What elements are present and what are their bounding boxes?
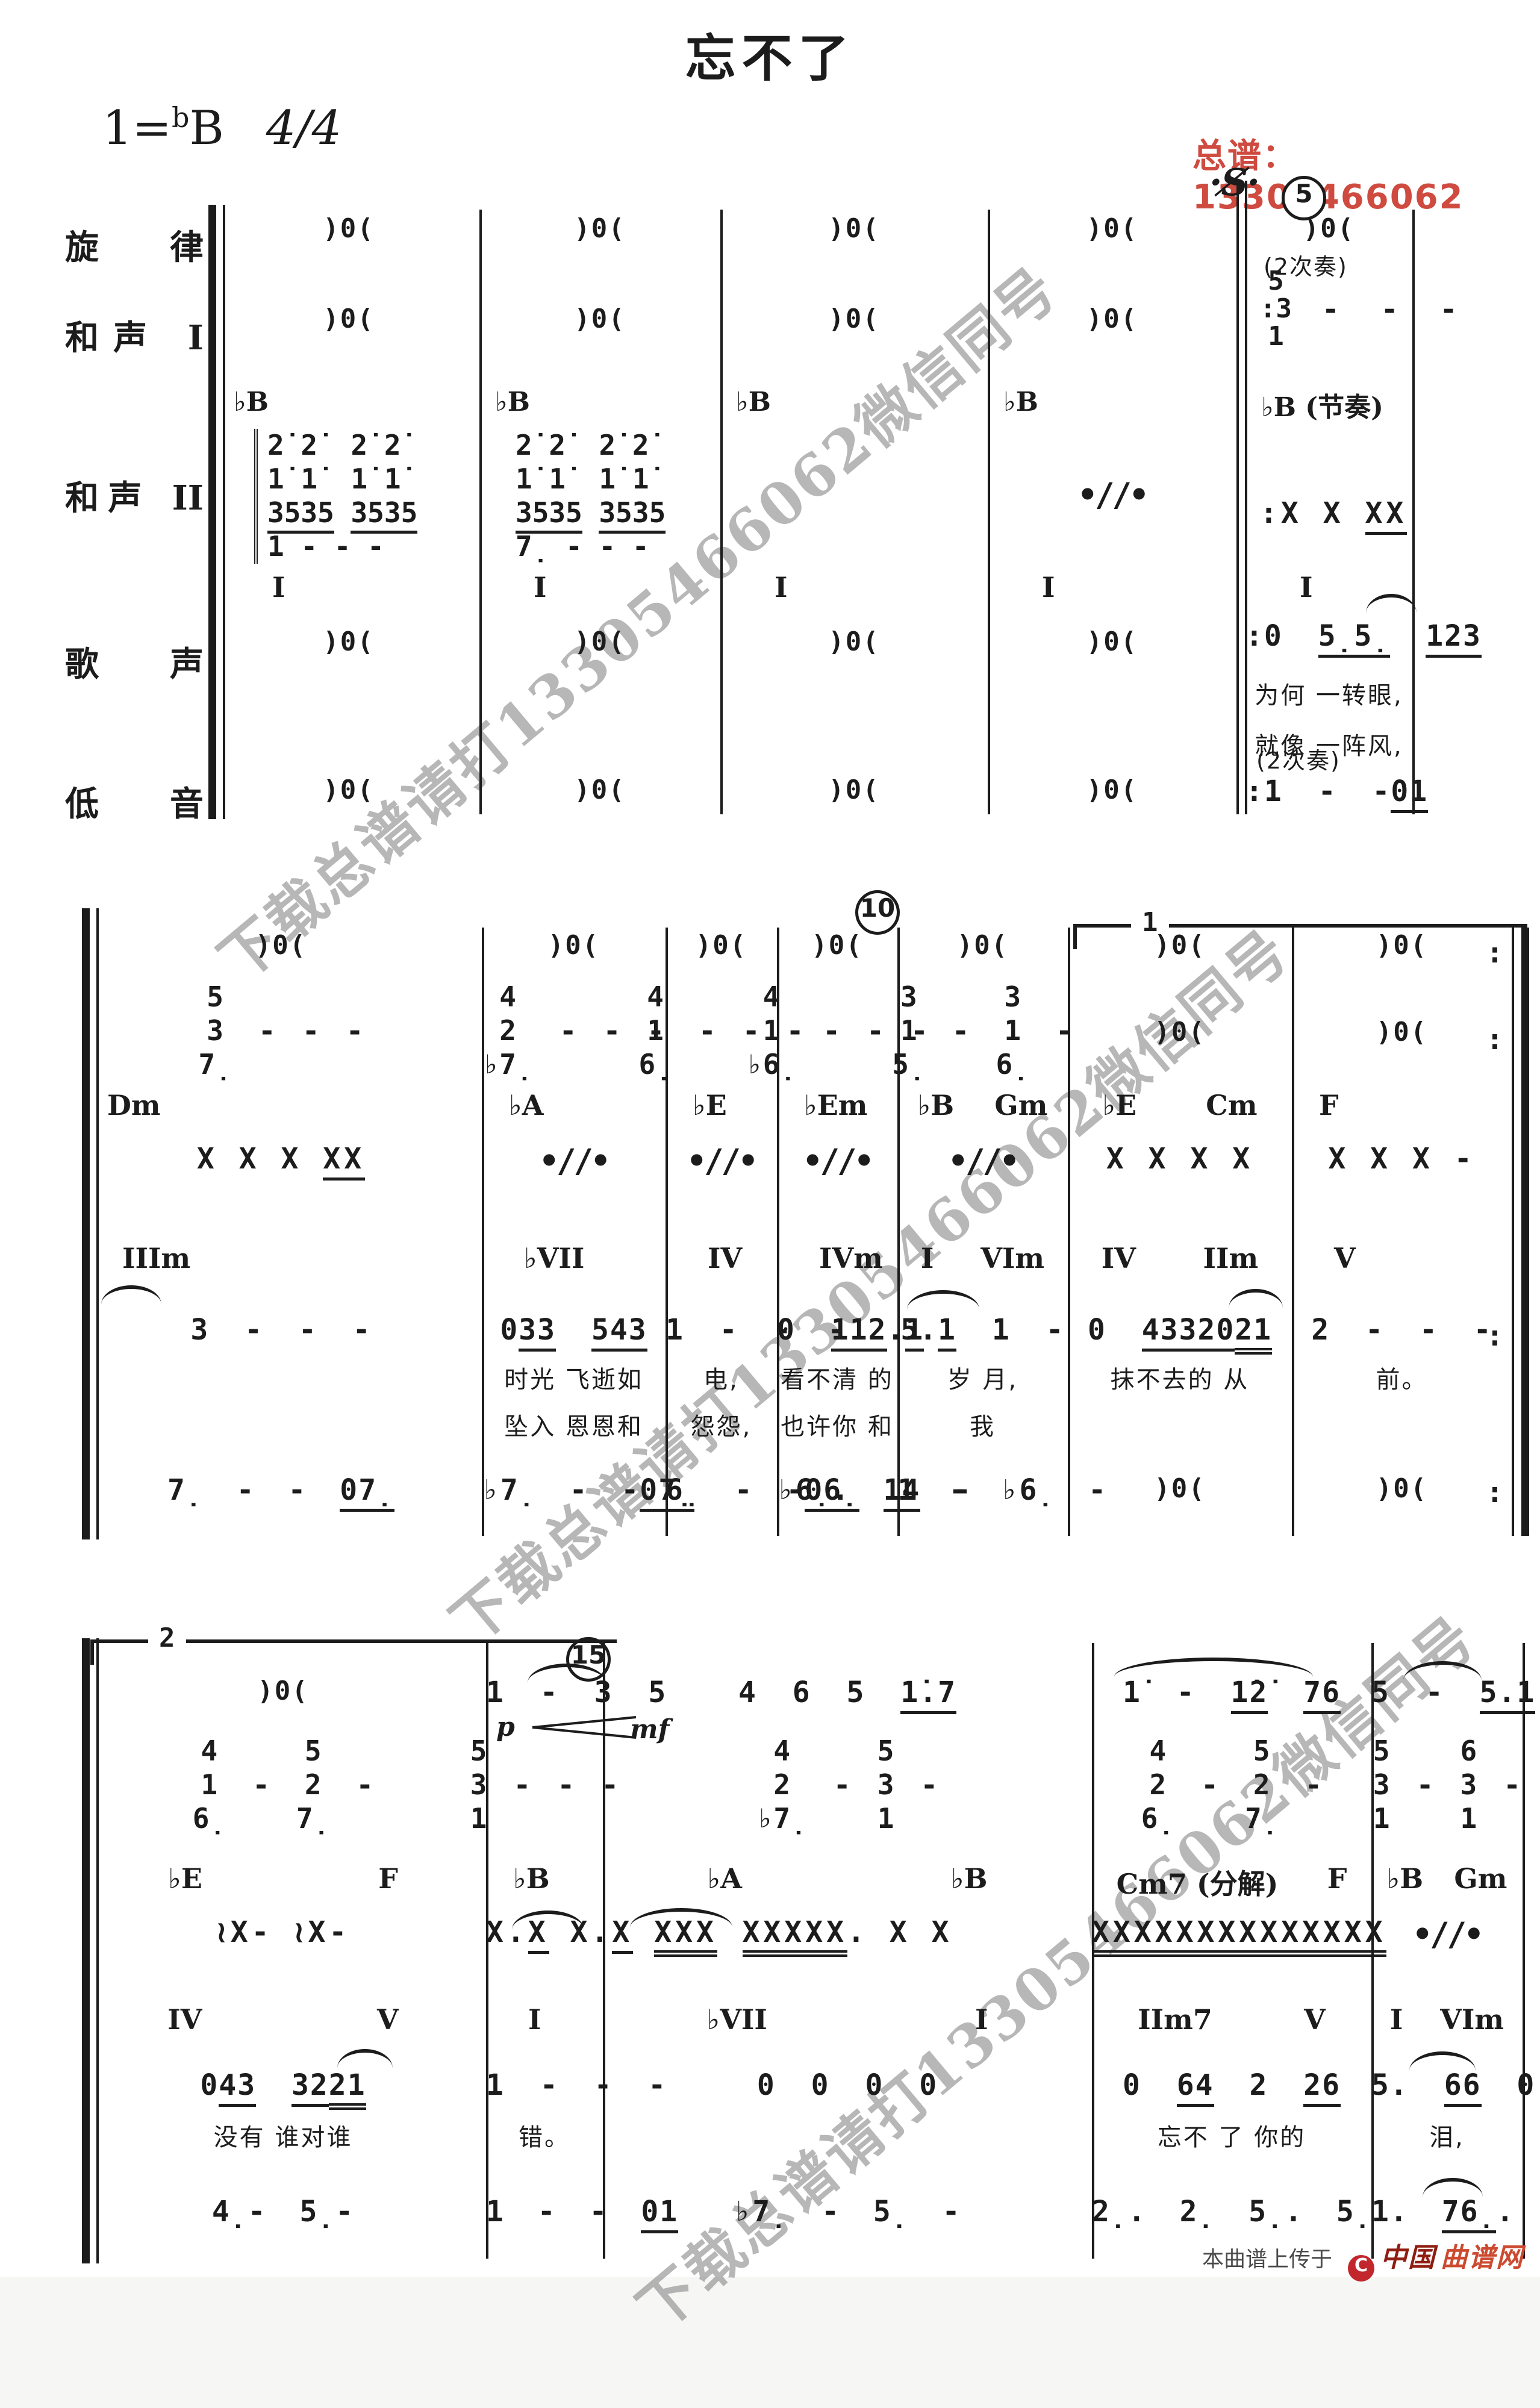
s3-m1-bass: 4̣- 5̣-	[80, 2196, 486, 2228]
s1-m1-bass-rest: )0(	[218, 776, 479, 805]
second-ending-label: 2	[148, 1623, 186, 1653]
s1-m4-harmony2-chordname: ♭B	[988, 385, 1252, 417]
s1-m5-harmony2-rhythm: :X X XX	[1245, 498, 1427, 529]
s2-m2-rest: )0(	[482, 931, 666, 960]
barline	[82, 908, 90, 1539]
s2-m2-vocal-melody: 033 543	[482, 1314, 666, 1346]
s2-m3-lyrics-1: 电,	[666, 1360, 777, 1395]
s2-m7-rhythm: X X X -	[1292, 1143, 1512, 1175]
barline	[1523, 1643, 1525, 2259]
s2-m4-rest: )0(	[777, 931, 897, 960]
s3-m4-vocal-melody: 0 64 2 26	[1092, 2070, 1371, 2101]
s2-m4-vocal-melody: 0 112.1	[777, 1314, 897, 1346]
s2-m4-rhythm: •∕∕•	[777, 1143, 897, 1179]
s2-m7-chordnames: F	[1292, 1089, 1539, 1121]
s3-m5-chordnames: ♭BGm	[1371, 1862, 1523, 1895]
s1-m4-bass-rest: )0(	[988, 776, 1236, 805]
s2-m5-roman: IVIm	[897, 1242, 1068, 1274]
s3-m3-vocal-melody: 0 0 0 0	[603, 2070, 1092, 2101]
s3-m1-roman: IVV	[80, 2003, 486, 2036]
s1-m3-bass-rest: )0(	[720, 776, 988, 805]
s3-m2-vocal-melody: 1 - - -	[486, 2070, 603, 2101]
s1-m5-harmony1-chord: 5:31- - -	[1245, 267, 1427, 352]
site-name-rest: 曲谱网	[1441, 2242, 1524, 2273]
s2-m3-bass: 6̣ - -06̣	[666, 1474, 777, 1506]
s3-m1-melody-top: )0(	[80, 1677, 486, 1706]
s1-m5-lyrics-1: 为何 一转眼,	[1245, 676, 1412, 711]
s1-m2-harmony2-stack: 2̇ 2̇ 2̇ 2̇1̇ 1̇ 1̇ 1̇3535 35357̣ - - -	[479, 429, 756, 564]
barline	[486, 1643, 488, 2259]
credit-text: 本曲谱上传于	[1202, 2247, 1332, 2272]
repeat-dots: :	[1483, 1477, 1507, 1509]
s2-m6-bass: )0(	[1068, 1474, 1292, 1503]
watermark-2: 下载总谱请打13305466062微信同号	[356, 844, 1379, 1721]
page-title: 忘不了	[0, 18, 1540, 91]
s2-m5-harmony-stack: 315̣-316̣-	[897, 981, 1068, 1082]
site-credit: 本曲谱上传于C中国曲谱网	[0, 2236, 1524, 2282]
s2-m4-lyrics-2: 也许你 和	[777, 1407, 897, 1442]
time-signature: 4/4	[266, 101, 342, 155]
s3-m1-harmony-stack: 416̣-527̣-	[80, 1735, 486, 1836]
slur-arc	[512, 1910, 584, 1930]
s2-m5-chordnames: ♭BGm	[897, 1089, 1068, 1121]
s3-m5-lyrics: 泪,	[1371, 2118, 1523, 2153]
s3-m1-chordnames: ♭EF	[80, 1862, 486, 1895]
key-signature: 1=bB4/4	[102, 101, 341, 155]
s3-m3-chordnames: ♭A♭B	[603, 1862, 1092, 1895]
slur-arc	[1409, 2051, 1476, 2071]
rehearsal-mark-10: 10	[855, 890, 900, 935]
site-logo-icon: C	[1348, 2255, 1374, 2282]
s2-m1-harmony-stack: 537̣---	[80, 981, 482, 1082]
s2-m1-vocal-melody: 3 - - -	[80, 1314, 482, 1346]
s2-m7-rest: )0(	[1292, 931, 1512, 960]
s2-m5-bass: 1 - ♭6̣ -	[897, 1474, 1068, 1506]
s2-m5-rhythm: •∕∕•	[897, 1143, 1068, 1179]
s3-m4-melody-top: 1̇ - 1̇2̇ 76	[1092, 1677, 1371, 1709]
s1-m2-harmony2-chordname: ♭B	[479, 385, 736, 417]
s2-m2-chordnames: ♭A	[482, 1089, 693, 1121]
s3-m4-chordnames: Cm7 (分解)F	[1092, 1862, 1371, 1902]
s1-m1-melody-rest: )0(	[218, 214, 479, 243]
s1-m5-vocal-melody: :0 5̣5̣ 123	[1245, 620, 1412, 652]
s2-m6-roman: IVIIm	[1068, 1242, 1292, 1274]
s2-m6-lyrics-1: 抹不去的 从	[1068, 1360, 1292, 1395]
s3-m5-harmony-stack: 531-631-	[1371, 1735, 1523, 1836]
s2-m7-vocal-melody: 2 - - -	[1292, 1314, 1512, 1346]
barline	[96, 908, 99, 1539]
barline	[1371, 1643, 1374, 2259]
part-label-harmony1: 和声 I	[65, 311, 204, 360]
barline	[1068, 928, 1070, 1536]
slur-arc	[337, 2049, 393, 2068]
s1-m4-harmony2-simile: •∕∕•	[988, 477, 1236, 513]
s2-m1-roman: IIIm	[80, 1242, 524, 1274]
s2-m3-lyrics-2: 怨怨,	[666, 1407, 777, 1442]
s3-m1-rhythm: ≀X- ≀X-	[80, 1917, 486, 1948]
s1-m5-harmony2-chordname: ♭B (节奏)	[1245, 385, 1428, 424]
s2-m3-vocal-melody: 1 - - -	[666, 1314, 777, 1346]
s1-m1-harmony2-chordname: ♭B	[218, 385, 495, 417]
s1-m4-harmony1-rest: )0(	[988, 305, 1236, 334]
barline	[1292, 928, 1294, 1536]
s2-m6-rhythm: X X X X	[1068, 1143, 1292, 1175]
barline	[82, 1638, 90, 2263]
s1-m3-harmony2-chordname: ♭B	[720, 385, 1003, 417]
flat-icon: b	[172, 101, 189, 134]
s3-m1-vocal-melody: 043 3221	[80, 2070, 486, 2101]
key-prefix: 1=	[102, 101, 172, 155]
barline	[482, 928, 484, 1536]
part-label-vocal: 歌 声	[65, 637, 204, 686]
s3-m4-lyrics: 忘不 了 你的	[1092, 2118, 1371, 2153]
s2-m6-chordnames: ♭ECm	[1068, 1089, 1292, 1121]
s2-m1-rest: )0(	[80, 931, 482, 960]
s2-m4-harmony-stack: 41♭6̣---	[777, 981, 897, 1082]
slur-arc	[630, 1908, 732, 1927]
s2-m1-rhythm: X X X XX	[80, 1143, 482, 1175]
s3-m2-harmony-stack: 531---	[486, 1735, 603, 1836]
s2-m7-harmony-rest: )0(	[1292, 1018, 1512, 1047]
s1-m4-melody-rest: )0(	[988, 214, 1236, 243]
s1-m2-bass-rest: )0(	[479, 776, 720, 805]
barline	[1092, 1643, 1094, 2259]
site-name-cn: 中国	[1380, 2242, 1436, 2273]
barline	[897, 928, 900, 1536]
s1-m3-vocal-rest: )0(	[720, 628, 988, 657]
s2-m4-bass: ♭6̣. 14 -	[777, 1474, 897, 1506]
s2-m4-lyrics-1: 看不清 的	[777, 1360, 897, 1395]
s3-m5-melody-top: 5 - 5.1̇ 17	[1371, 1677, 1523, 1709]
s3-m2-lyrics: 错。	[486, 2118, 603, 2153]
s1-m1-harmony2-stack: 2̇ 2̇ 2̇ 2̇1̇ 1̇ 1̇ 1̇3535 35351 - - -	[218, 429, 516, 564]
s3-m5-rhythm: •∕∕•	[1371, 1917, 1523, 1952]
s3-m4-roman: IIm7V	[1092, 2003, 1371, 2036]
s1-m5-bass-melody: :1 - -01	[1245, 776, 1412, 808]
s3-m1-lyrics: 没有 谁对谁	[80, 2118, 486, 2153]
slur-arc	[1423, 2178, 1483, 2197]
s1-m2-melody-rest: )0(	[479, 214, 720, 243]
barline	[96, 1638, 99, 2263]
s3-m3-harmony-stack: 42♭7̣-531-	[603, 1735, 1092, 1836]
barline	[1245, 181, 1247, 814]
s2-m1-bass: 7̣ - - 07̣	[80, 1474, 482, 1506]
s1-m5-bass-note: (2次奏)	[1245, 742, 1423, 775]
s2-m5-rest: )0(	[897, 931, 1068, 960]
barline	[603, 1643, 605, 2259]
s3-m5-bass: 1. 76̣. 3	[1371, 2196, 1523, 2228]
slur-arc	[1114, 1658, 1313, 1677]
key-note: B	[189, 101, 223, 155]
s2-m3-rest: )0(	[666, 931, 777, 960]
s1-m2-harmony1-rest: )0(	[479, 305, 720, 334]
repeat-dots: :	[1483, 1024, 1507, 1056]
barline	[223, 205, 225, 819]
s2-m5-vocal-melody: 5.1 1 -	[897, 1314, 1068, 1346]
s1-m4-vocal-rest: )0(	[988, 628, 1236, 657]
s2-m5-lyrics-1: 岁 月,	[897, 1360, 1068, 1395]
s3-m4-bass: 2̣. 2̣ 5̣. 5̣	[1092, 2196, 1371, 2228]
s2-m5-lyrics-2: 我	[897, 1407, 1068, 1442]
barline	[1521, 928, 1529, 1536]
part-label-melody: 旋 律	[65, 220, 204, 269]
s2-m7-bass: )0(	[1292, 1474, 1512, 1503]
barline	[777, 928, 779, 1536]
segno-icon: ·S̸·	[1209, 160, 1259, 204]
s2-m2-harmony-stack: 42♭7̣---	[482, 981, 666, 1082]
s2-m7-lyrics-1: 前。	[1292, 1360, 1512, 1395]
score-page: { "header": { "title": "忘不了", "key_prefi…	[0, 0, 1540, 2277]
s1-m1-harmony1-rest: )0(	[218, 305, 479, 334]
barline	[1512, 928, 1514, 1536]
barline	[720, 210, 723, 814]
barline	[479, 210, 482, 814]
barline	[208, 205, 216, 819]
s2-m1-chordnames: Dm	[80, 1089, 509, 1121]
repeat-dots: :	[1483, 937, 1507, 969]
s3-m3-melody-top: 4 6 5 1̇.7	[603, 1677, 1092, 1709]
s2-m2-bass: ♭7̣ - -07̣	[482, 1474, 666, 1506]
s2-m7-roman: V	[1292, 1242, 1540, 1274]
slur-arc	[101, 1285, 161, 1305]
s3-m4-harmony-stack: 426̣-527̣-	[1092, 1735, 1371, 1836]
s2-m2-lyrics-1: 时光 飞逝如	[482, 1360, 666, 1395]
barline	[988, 210, 990, 814]
s1-m1-vocal-rest: )0(	[218, 628, 479, 657]
s3-m3-roman: ♭VIII	[603, 2003, 1092, 2036]
part-label-harmony2: 和声 II	[65, 471, 204, 520]
s3-m2-bass: 1 - - 01	[486, 2196, 603, 2228]
s3-m3-bass: ♭7̣ - 5̣ -	[603, 2196, 1092, 2228]
part-label-bass: 低 音	[65, 777, 204, 826]
barline	[666, 928, 668, 1536]
second-ending-bracket: 2	[90, 1639, 617, 1665]
s2-m6-harmony-rest: )0(	[1068, 1018, 1292, 1047]
s2-m2-lyrics-2: 坠入 恩恩和	[482, 1407, 666, 1442]
s1-m3-harmony1-rest: )0(	[720, 305, 988, 334]
s2-m2-rhythm: •∕∕•	[482, 1143, 666, 1179]
s3-m4-rhythm: XXXXXXXXXXXXXX	[1092, 1917, 1371, 1948]
s1-m5-melody-rest: )0(	[1245, 214, 1412, 243]
barline	[1412, 210, 1415, 814]
s3-m5-roman: IVIm	[1371, 2003, 1523, 2036]
s3-m5-vocal-melody: 5. 66 0	[1371, 2070, 1523, 2101]
s1-m3-melody-rest: )0(	[720, 214, 988, 243]
s1-m2-vocal-rest: )0(	[479, 628, 720, 657]
s2-m6-vocal-melody: 0 4332021	[1068, 1314, 1292, 1346]
s2-m3-rhythm: •∕∕•	[666, 1143, 777, 1179]
repeat-dots: :	[1483, 1320, 1507, 1352]
s2-m6-rest: )0(	[1068, 931, 1292, 960]
s1-m5-harmony2-roman: I	[1245, 571, 1467, 604]
barline	[1236, 181, 1239, 814]
slur-arc	[1229, 1289, 1283, 1308]
